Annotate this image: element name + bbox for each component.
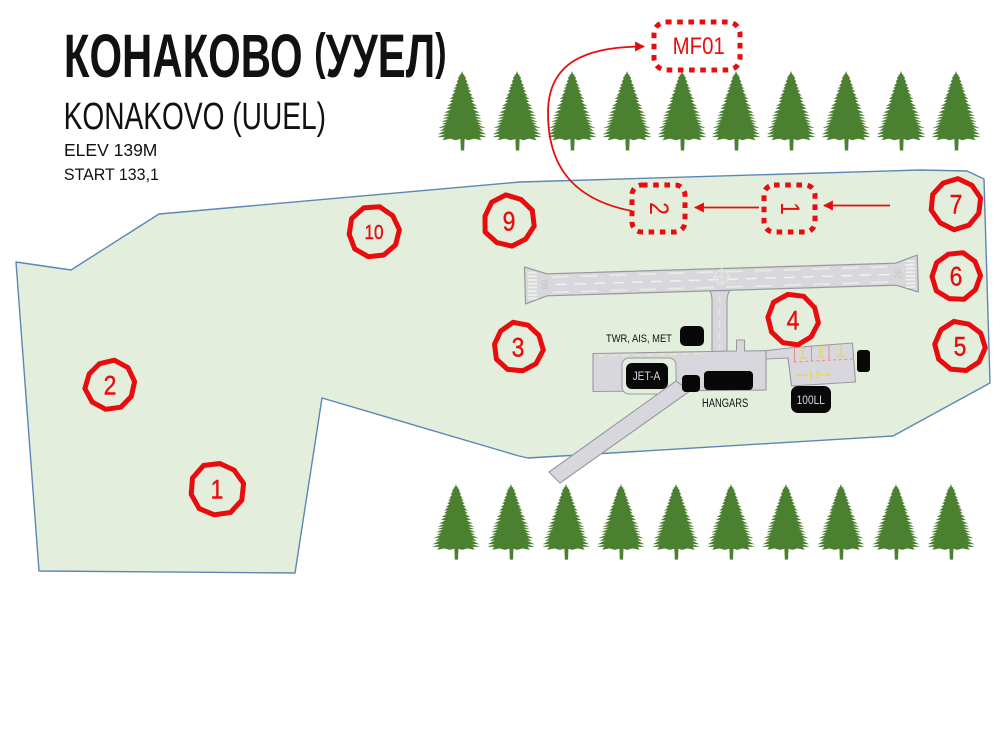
svg-text:5: 5 bbox=[954, 332, 967, 362]
svg-text:ELEV 139M: ELEV 139M bbox=[64, 140, 157, 160]
svg-text:26: 26 bbox=[893, 269, 903, 279]
svg-text:1: 1 bbox=[774, 202, 804, 215]
svg-text:3: 3 bbox=[512, 333, 525, 363]
svg-text:HANGARS: HANGARS bbox=[702, 397, 748, 410]
svg-text:TWR, AIS, MET: TWR, AIS, MET bbox=[606, 333, 672, 345]
svg-text:10: 10 bbox=[365, 221, 384, 244]
svg-text:08: 08 bbox=[539, 280, 549, 290]
svg-text:4: 4 bbox=[787, 306, 800, 336]
svg-text:7: 7 bbox=[950, 190, 963, 220]
svg-text:КОНАКОВО (УУЕЛ): КОНАКОВО (УУЕЛ) bbox=[64, 23, 447, 91]
svg-text:6: 6 bbox=[950, 262, 963, 292]
svg-text:START 133,1: START 133,1 bbox=[64, 166, 159, 185]
svg-text:100LL: 100LL bbox=[797, 394, 825, 407]
svg-text:1: 1 bbox=[211, 475, 224, 505]
svg-text:2: 2 bbox=[643, 202, 673, 215]
svg-text:9: 9 bbox=[503, 207, 516, 237]
svg-text:KONAKOVO (UUEL): KONAKOVO (UUEL) bbox=[64, 96, 326, 138]
svg-text:2: 2 bbox=[104, 371, 117, 401]
svg-text:JET-A: JET-A bbox=[633, 370, 661, 383]
svg-text:MF01: MF01 bbox=[673, 32, 725, 59]
